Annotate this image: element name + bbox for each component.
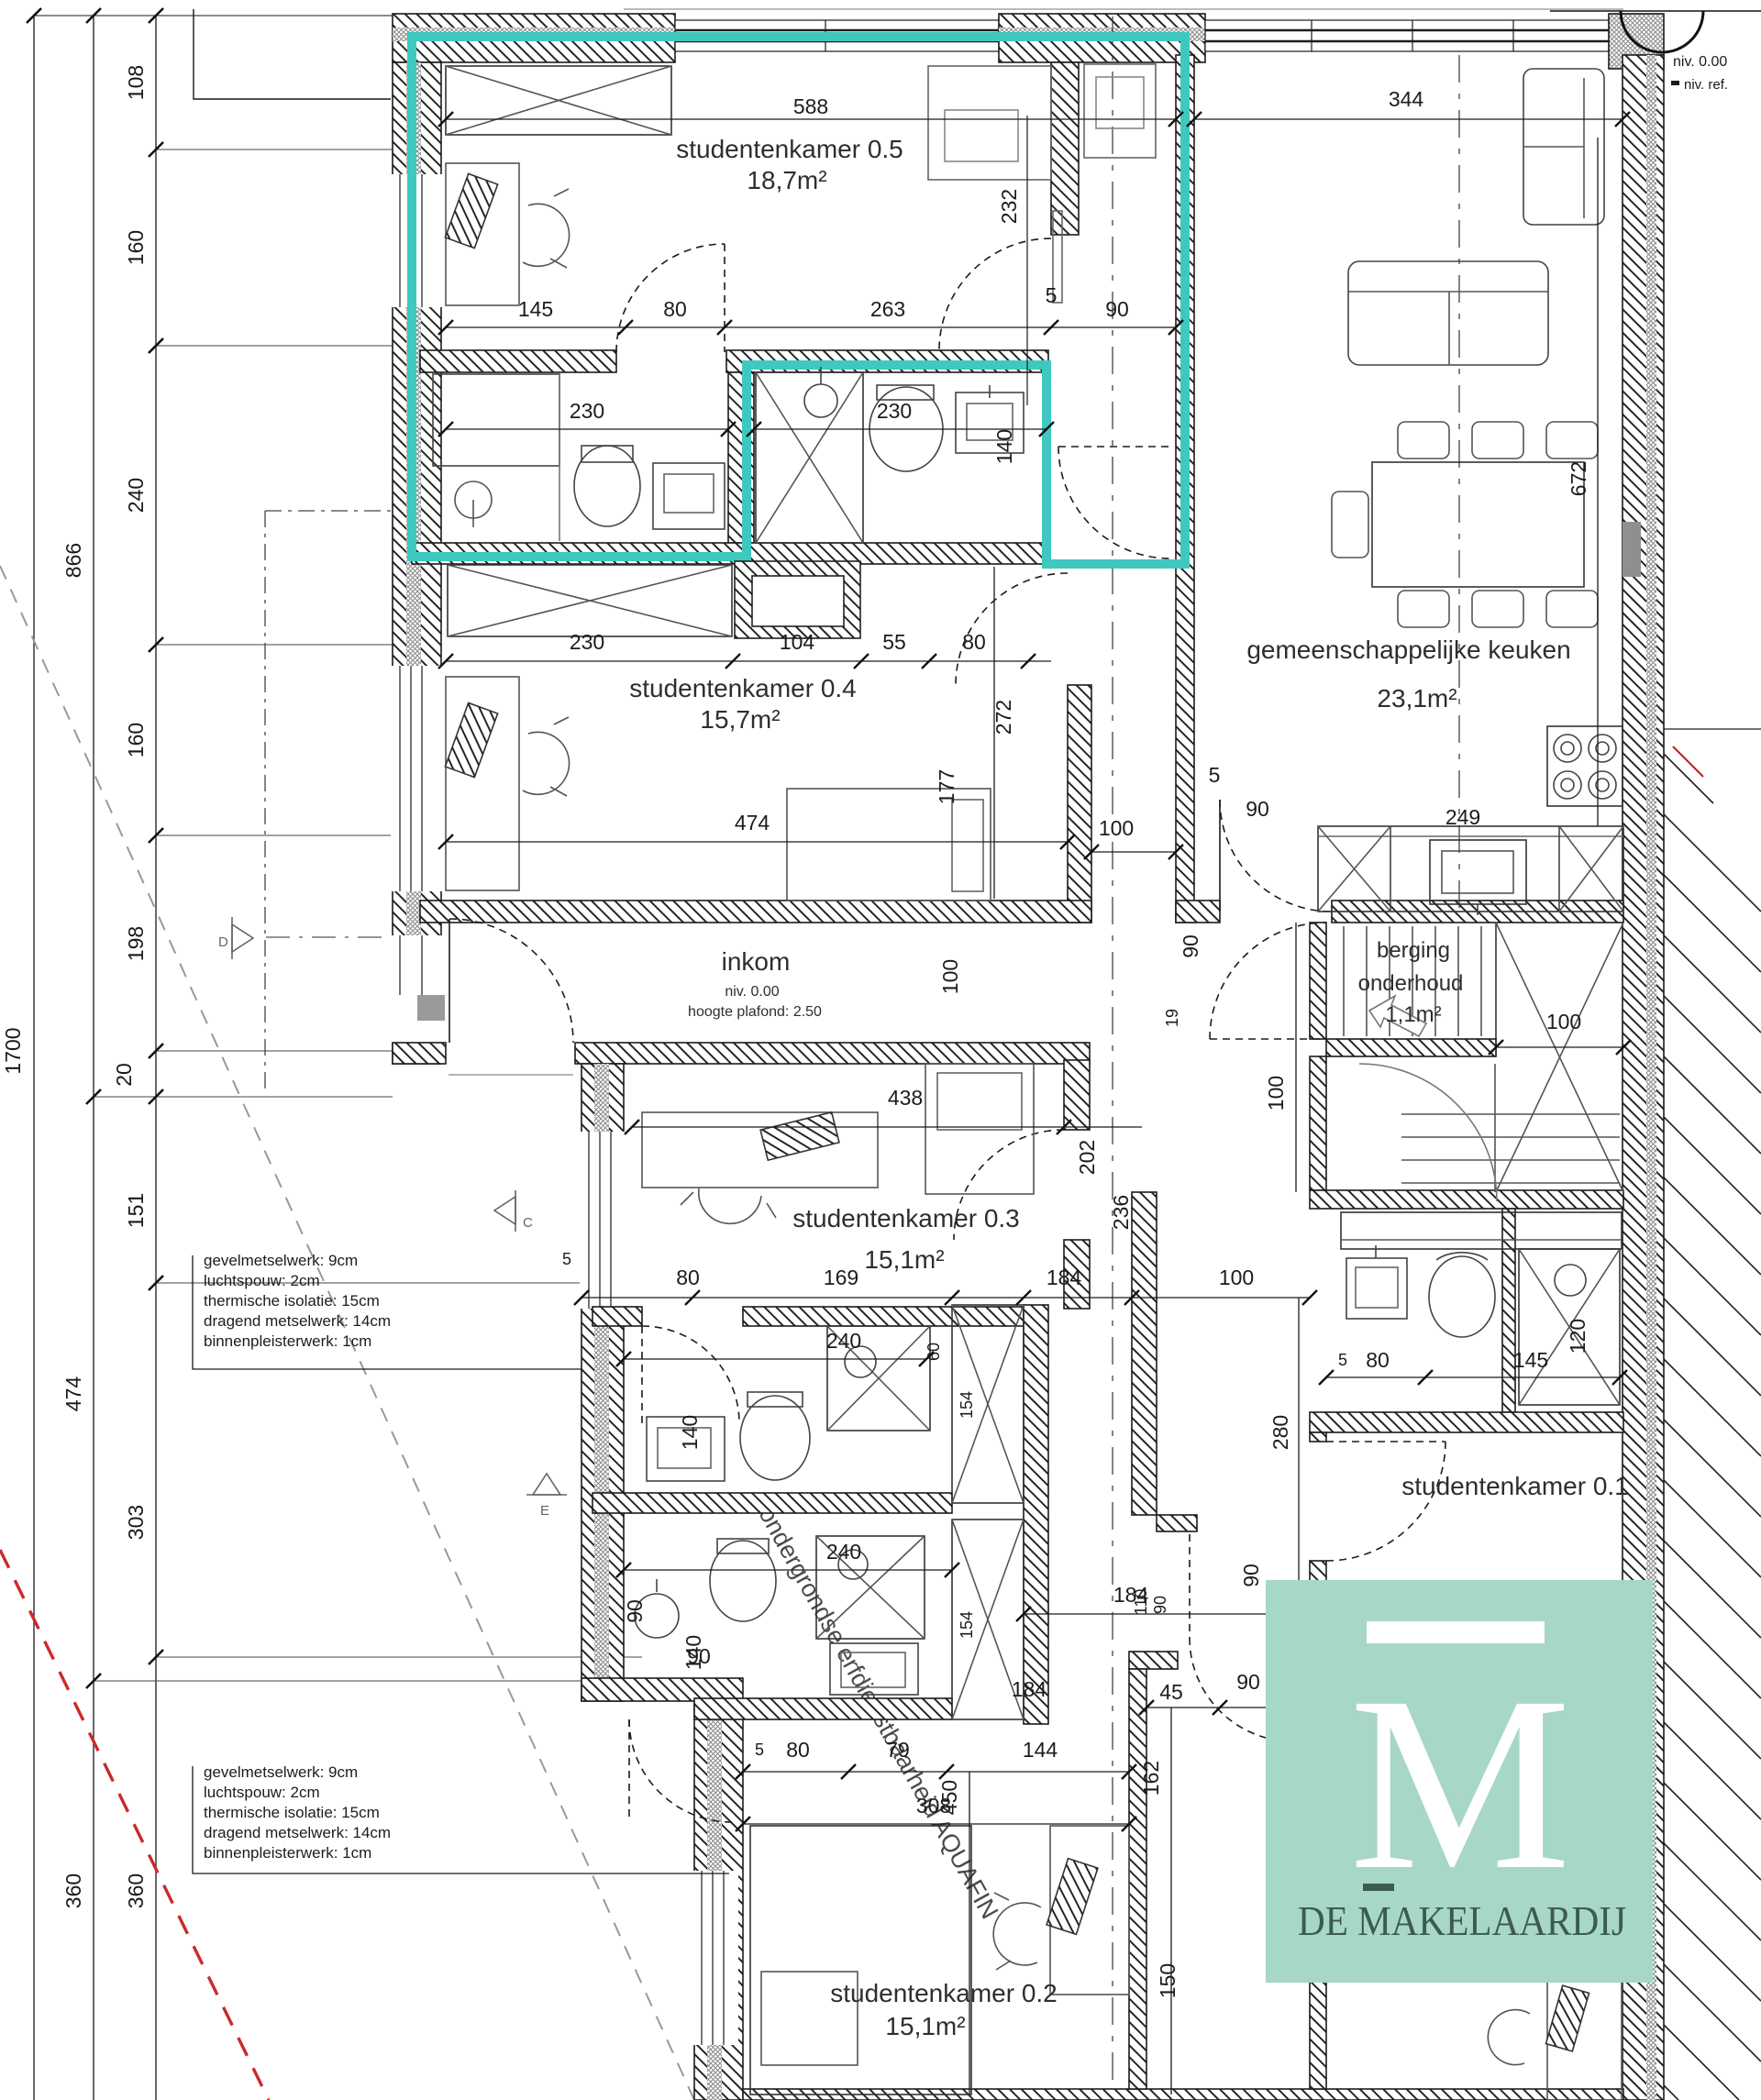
svg-text:studentenkamer 0.3: studentenkamer 0.3 [792, 1204, 1020, 1232]
svg-text:D: D [218, 934, 228, 950]
svg-text:100: 100 [938, 959, 962, 994]
svg-text:100: 100 [1264, 1076, 1288, 1111]
svg-text:140: 140 [678, 1415, 702, 1450]
svg-text:berging: berging [1377, 938, 1450, 963]
svg-text:hoogte plafond: 2.50: hoogte plafond: 2.50 [688, 1004, 822, 1020]
svg-text:90: 90 [1236, 1670, 1260, 1694]
svg-text:90: 90 [687, 1644, 711, 1668]
svg-text:144: 144 [1023, 1738, 1058, 1762]
svg-text:15,7m²: 15,7m² [700, 705, 780, 734]
svg-text:thermische isolatie: 15cm: thermische isolatie: 15cm [204, 1804, 380, 1821]
svg-text:C: C [523, 1215, 533, 1231]
svg-text:150: 150 [1156, 1963, 1180, 1998]
svg-text:gemeenschappelijke keuken: gemeenschappelijke keuken [1246, 636, 1570, 664]
svg-text:90: 90 [1239, 1564, 1263, 1587]
svg-text:120: 120 [1566, 1319, 1589, 1354]
svg-text:inkom: inkom [722, 947, 791, 976]
svg-text:luchtspouw: 2cm: luchtspouw: 2cm [204, 1272, 320, 1289]
svg-text:80: 80 [676, 1266, 700, 1289]
svg-text:5: 5 [1046, 283, 1058, 307]
svg-text:55: 55 [882, 630, 906, 654]
svg-text:5: 5 [755, 1741, 764, 1759]
svg-text:studentenkamer 0.5: studentenkamer 0.5 [676, 135, 903, 163]
svg-text:198: 198 [124, 926, 148, 961]
svg-text:240: 240 [826, 1329, 861, 1353]
svg-text:360: 360 [61, 1873, 85, 1908]
svg-text:80: 80 [1366, 1348, 1390, 1372]
svg-text:E: E [540, 1503, 549, 1519]
svg-text:162: 162 [1139, 1761, 1163, 1796]
svg-text:474: 474 [61, 1376, 85, 1412]
svg-text:18,7m²: 18,7m² [747, 166, 826, 194]
svg-text:263: 263 [870, 297, 905, 321]
svg-text:15,1m²: 15,1m² [864, 1245, 944, 1274]
svg-text:272: 272 [991, 700, 1015, 735]
svg-text:145: 145 [1513, 1348, 1548, 1372]
svg-text:100: 100 [1546, 1010, 1581, 1033]
svg-text:474: 474 [735, 811, 770, 834]
svg-text:249: 249 [1445, 805, 1480, 829]
svg-text:672: 672 [1567, 461, 1590, 496]
svg-text:360: 360 [124, 1873, 148, 1908]
svg-text:studentenkamer 0.4: studentenkamer 0.4 [629, 674, 857, 702]
svg-text:232: 232 [997, 189, 1021, 224]
svg-text:230: 230 [570, 630, 604, 654]
svg-text:DE MAKELAARDIJ: DE MAKELAARDIJ [1298, 1897, 1626, 1944]
svg-text:niv. 0.00: niv. 0.00 [1673, 54, 1727, 70]
svg-text:140: 140 [992, 429, 1016, 464]
svg-text:104: 104 [780, 630, 815, 654]
svg-text:5: 5 [1338, 1351, 1347, 1369]
svg-text:luchtspouw: 2cm: luchtspouw: 2cm [204, 1784, 320, 1801]
svg-text:236: 236 [1109, 1195, 1133, 1230]
svg-text:M: M [1349, 1645, 1571, 1921]
svg-text:184: 184 [1012, 1677, 1047, 1701]
svg-text:154: 154 [958, 1611, 976, 1639]
svg-text:23,1m²: 23,1m² [1377, 684, 1456, 713]
svg-text:gevelmetselwerk: 9cm: gevelmetselwerk: 9cm [204, 1252, 358, 1269]
svg-text:450: 450 [937, 1780, 961, 1815]
svg-text:dragend metselwerk: 14cm: dragend metselwerk: 14cm [204, 1312, 391, 1330]
svg-text:gevelmetselwerk: 9cm: gevelmetselwerk: 9cm [204, 1763, 358, 1781]
svg-text:1,1m²: 1,1m² [1385, 1002, 1441, 1027]
svg-text:230: 230 [570, 399, 604, 423]
svg-text:onderhoud: onderhoud [1358, 971, 1464, 996]
svg-text:niv. 0.00: niv. 0.00 [725, 984, 779, 1000]
svg-text:100: 100 [1219, 1266, 1254, 1289]
svg-text:45: 45 [1159, 1680, 1183, 1704]
svg-text:studentenkamer 0.1: studentenkamer 0.1 [1401, 1472, 1629, 1500]
svg-text:binnenpleisterwerk: 1cm: binnenpleisterwerk: 1cm [204, 1332, 371, 1350]
svg-text:90: 90 [1105, 297, 1129, 321]
svg-text:thermische isolatie: 15cm: thermische isolatie: 15cm [204, 1292, 380, 1310]
svg-text:438: 438 [888, 1086, 923, 1110]
svg-text:866: 866 [61, 543, 85, 578]
svg-text:160: 160 [124, 723, 148, 757]
svg-text:160: 160 [124, 230, 148, 265]
svg-text:dragend metselwerk: 14cm: dragend metselwerk: 14cm [204, 1824, 391, 1841]
svg-text:110: 110 [1132, 1589, 1150, 1616]
svg-text:184: 184 [1047, 1266, 1082, 1289]
svg-text:280: 280 [1268, 1415, 1292, 1450]
svg-text:90: 90 [1151, 1596, 1169, 1614]
svg-text:240: 240 [124, 478, 148, 513]
svg-text:202: 202 [1075, 1140, 1099, 1175]
svg-text:344: 344 [1389, 87, 1424, 111]
svg-text:20: 20 [112, 1063, 136, 1087]
svg-text:108: 108 [124, 65, 148, 100]
svg-text:588: 588 [793, 94, 828, 118]
svg-text:90: 90 [623, 1599, 647, 1623]
svg-text:90: 90 [1246, 797, 1269, 821]
svg-text:studentenkamer 0.2: studentenkamer 0.2 [830, 1979, 1058, 2007]
svg-text:79: 79 [886, 1738, 910, 1762]
svg-text:80: 80 [962, 630, 986, 654]
svg-text:19: 19 [1163, 1009, 1181, 1027]
svg-text:151: 151 [124, 1193, 148, 1228]
svg-text:154: 154 [958, 1391, 976, 1419]
svg-text:5: 5 [1209, 763, 1221, 787]
svg-text:169: 169 [824, 1266, 858, 1289]
svg-text:145: 145 [518, 297, 553, 321]
svg-text:90: 90 [1179, 934, 1202, 958]
svg-text:177: 177 [935, 769, 958, 804]
svg-text:230: 230 [877, 399, 912, 423]
svg-text:niv. ref.: niv. ref. [1684, 77, 1728, 93]
svg-text:binnenpleisterwerk: 1cm: binnenpleisterwerk: 1cm [204, 1844, 371, 1862]
svg-text:1700: 1700 [1, 1027, 25, 1074]
svg-text:100: 100 [1099, 816, 1134, 840]
svg-text:80: 80 [786, 1738, 810, 1762]
svg-text:60: 60 [925, 1343, 943, 1361]
svg-text:15,1m²: 15,1m² [885, 2012, 965, 2040]
svg-text:80: 80 [663, 297, 687, 321]
svg-text:240: 240 [826, 1540, 861, 1564]
svg-text:5: 5 [562, 1250, 571, 1268]
svg-text:303: 303 [124, 1505, 148, 1540]
